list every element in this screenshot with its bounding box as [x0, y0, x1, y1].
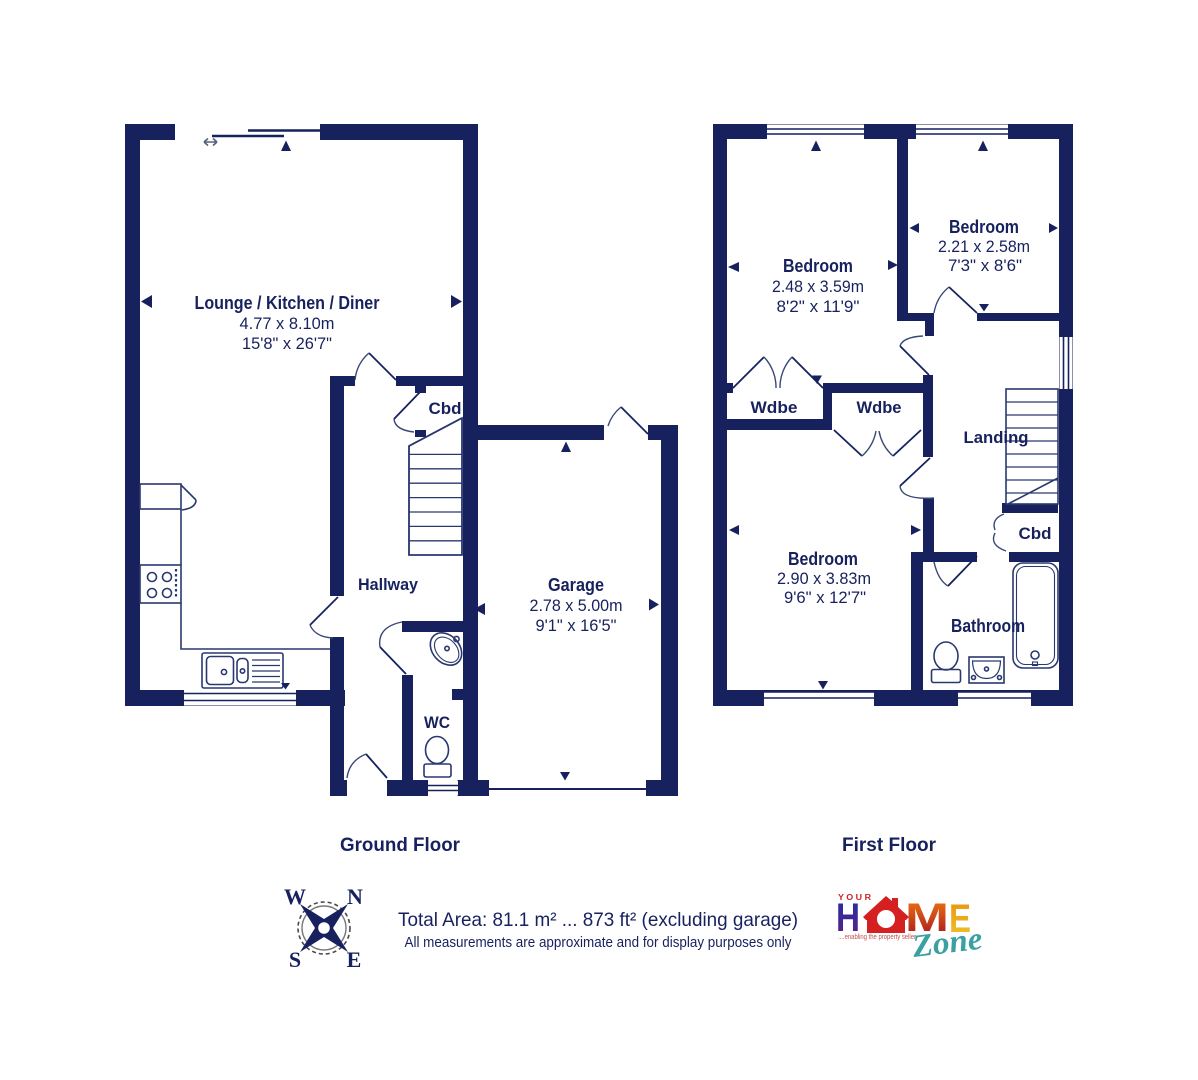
svg-text:WC: WC [424, 713, 450, 732]
svg-text:Cbd: Cbd [429, 399, 462, 418]
svg-text:Bedroom: Bedroom [783, 256, 853, 276]
svg-text:Wdbe: Wdbe [751, 398, 798, 417]
svg-text:Landing: Landing [964, 428, 1029, 447]
svg-text:Bedroom: Bedroom [788, 549, 858, 569]
svg-text:Ground Floor: Ground Floor [340, 834, 460, 856]
svg-text:....enabling the property sell: ....enabling the property seller [838, 934, 917, 941]
svg-text:7'3" x 8'6": 7'3" x 8'6" [948, 256, 1022, 275]
svg-text:Total Area: 81.1 m² ... 873 ft: Total Area: 81.1 m² ... 873 ft² (excludi… [398, 909, 798, 931]
svg-text:W: W [284, 884, 306, 909]
svg-text:Wdbe: Wdbe [857, 398, 902, 417]
svg-text:Garage: Garage [548, 575, 604, 595]
svg-text:N: N [347, 884, 363, 909]
svg-text:2.78 x 5.00m: 2.78 x 5.00m [530, 596, 623, 615]
svg-text:S: S [289, 947, 301, 972]
svg-text:2.48 x 3.59m: 2.48 x 3.59m [772, 277, 864, 296]
svg-text:15'8" x 26'7": 15'8" x 26'7" [242, 334, 332, 353]
svg-text:9'1" x 16'5": 9'1" x 16'5" [536, 616, 617, 635]
svg-text:9'6" x 12'7": 9'6" x 12'7" [784, 588, 866, 607]
svg-text:8'2" x 11'9": 8'2" x 11'9" [777, 297, 860, 316]
svg-text:4.77 x 8.10m: 4.77 x 8.10m [240, 314, 335, 333]
svg-text:2.21 x 2.58m: 2.21 x 2.58m [938, 237, 1030, 256]
svg-text:Bedroom: Bedroom [949, 217, 1019, 237]
svg-text:E: E [347, 947, 362, 972]
svg-text:Lounge / Kitchen / Diner: Lounge / Kitchen / Diner [195, 293, 380, 313]
svg-text:All measurements are approxima: All measurements are approximate and for… [405, 935, 793, 951]
svg-text:Bathroom: Bathroom [951, 616, 1025, 636]
svg-text:2.90 x 3.83m: 2.90 x 3.83m [777, 569, 871, 588]
svg-text:Hallway: Hallway [358, 575, 419, 594]
svg-text:First Floor: First Floor [842, 834, 936, 856]
svg-text:Cbd: Cbd [1019, 524, 1052, 543]
